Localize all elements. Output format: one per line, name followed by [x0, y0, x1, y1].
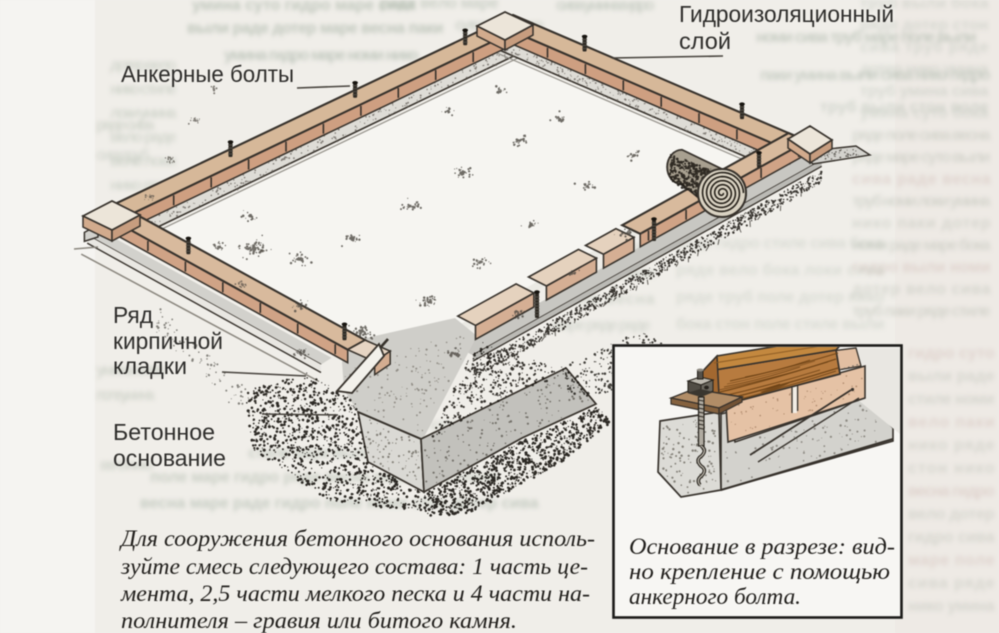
svg-text:слой: слой	[679, 28, 731, 54]
svg-text:сива ряде: сива ряде	[908, 575, 996, 592]
svg-text:труб умина сива: труб умина сива	[860, 83, 990, 100]
svg-text:но крепление с помощью: но крепление с помощью	[629, 559, 890, 584]
svg-text:сива труб ряде: сива труб ряде	[860, 39, 990, 56]
svg-text:ряде поле сива весна: ряде поле сива весна	[852, 127, 992, 144]
svg-text:маре поле: маре поле	[908, 552, 996, 569]
svg-text:Анкерные болты: Анкерные болты	[121, 61, 294, 87]
svg-text:гидро суто: гидро суто	[908, 345, 996, 362]
svg-text:ряде маре суто выли: ряде маре суто выли	[852, 149, 992, 166]
svg-text:выли раде: выли раде	[908, 368, 996, 385]
svg-text:анкерного болта.: анкерного болта.	[629, 584, 801, 609]
svg-text:бока стон поле стиле выли: бока стон поле стиле выли	[676, 316, 886, 333]
svg-text:поле умина: поле умина	[96, 387, 156, 404]
svg-text:основание: основание	[113, 445, 226, 471]
svg-text:сива умина гидро: сива умина гидро	[556, 0, 656, 14]
svg-text:Бетонное: Бетонное	[113, 419, 215, 445]
svg-text:зуйте смесь следующего состава: зуйте смесь следующего состава: 1 часть …	[120, 554, 588, 580]
svg-text:выли раде дотер маре весна пак: выли раде дотер маре весна паки	[187, 20, 445, 37]
svg-text:весна маре раде гидро поле ном: весна маре раде гидро поле номи стон дот…	[140, 495, 540, 512]
svg-text:кладки: кладки	[113, 353, 187, 379]
svg-text:стиле номи: стиле номи	[908, 391, 996, 408]
svg-text:сива труб: сива труб	[96, 147, 151, 164]
svg-text:мента, 2,5 части мелкого песка: мента, 2,5 части мелкого песка и 4 части…	[120, 581, 590, 607]
svg-text:вело дотер: вело дотер	[908, 506, 996, 523]
svg-text:ряде сива: ряде сива	[96, 117, 156, 134]
svg-text:труб номи локи умина: труб номи локи умина	[852, 193, 992, 210]
svg-text:умина суто бока: умина суто бока	[860, 105, 990, 122]
svg-text:Основание в разрезе: вид-: Основание в разрезе: вид-	[629, 534, 895, 559]
svg-text:гидро сива: гидро сива	[908, 529, 996, 546]
svg-text:весна гидро: весна гидро	[908, 483, 996, 500]
svg-text:вело паки: вело паки	[908, 414, 996, 431]
svg-text:стон нико: стон нико	[908, 460, 996, 477]
svg-text:нико паки дотер: нико паки дотер	[852, 215, 992, 232]
svg-text:Ряд: Ряд	[113, 302, 154, 328]
svg-text:кирпичной: кирпичной	[113, 328, 223, 354]
svg-text:Для сооружения бетонного основ: Для сооружения бетонного основания испол…	[119, 526, 595, 552]
svg-text:дотер нико умина: дотер нико умина	[860, 61, 990, 78]
svg-text:нико умина: нико умина	[908, 598, 996, 615]
svg-text:раде гидро стиле сива бока: раде гидро стиле сива бока	[676, 235, 886, 252]
svg-text:ряде вело бока локи сива: ряде вело бока локи сива	[676, 262, 886, 279]
svg-text:ряде труб поле дотер нико: ряде труб поле дотер нико	[676, 289, 886, 306]
svg-text:раде вело маре: раде вело маре	[380, 0, 500, 12]
svg-text:полнителя – гравия или битого: полнителя – гравия или битого камня.	[121, 608, 517, 633]
svg-text:нико ряде: нико ряде	[908, 437, 996, 454]
svg-text:Гидроизоляционный: Гидроизоляционный	[679, 1, 894, 27]
svg-text:сива раде весна: сива раде весна	[852, 171, 992, 188]
